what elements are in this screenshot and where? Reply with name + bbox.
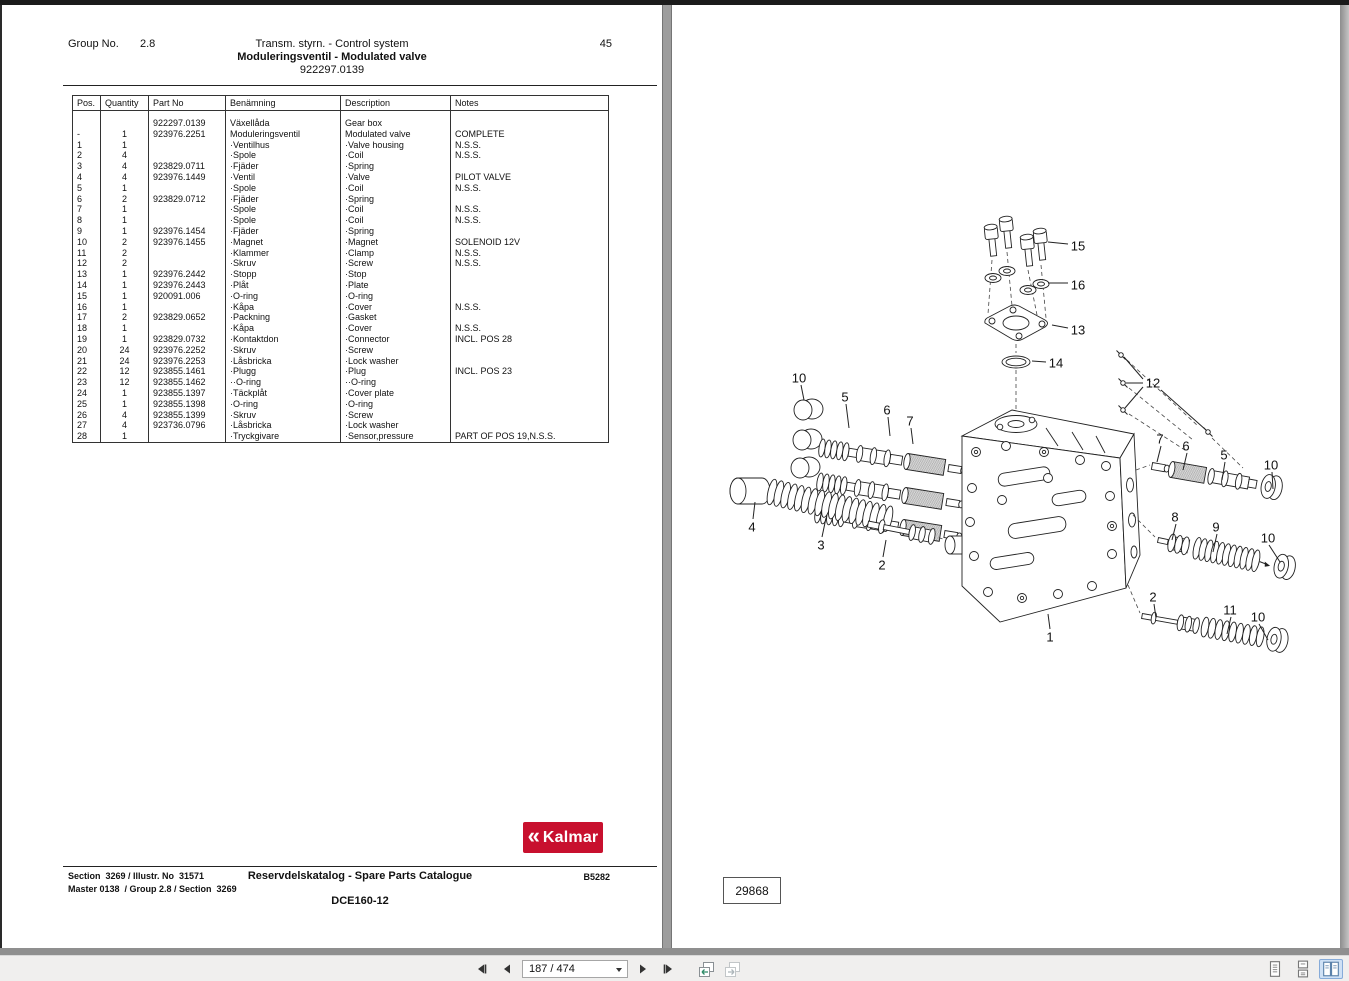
- page-title-line2: Moduleringsventil - Modulated valve: [2, 51, 662, 63]
- callout-label: 10: [1251, 610, 1265, 625]
- header-rule: [63, 85, 657, 86]
- table-row: 112·Klammer·ClampN.S.S.: [73, 248, 609, 259]
- callout-leader-line: [1157, 446, 1161, 462]
- table-row: 122·Skruv·ScrewN.S.S.: [73, 258, 609, 269]
- callout-leader-line: [1048, 614, 1050, 629]
- cover-plate-13: [985, 305, 1048, 341]
- callout-label: 7: [906, 414, 913, 429]
- previous-view-icon: [697, 961, 717, 978]
- figure-number: 29868: [735, 884, 768, 898]
- column-header: Description: [341, 96, 451, 111]
- parts-table-header-row: Pos.QuantityPart NoBenämningDescriptionN…: [73, 96, 609, 111]
- callout-label: 15: [1071, 239, 1085, 254]
- table-row: 91923976.1454·Fjäder·Spring: [73, 226, 609, 237]
- callout-leader-line: [1161, 390, 1206, 430]
- table-row: 241923855.1397·Täckplåt·Cover plate: [73, 388, 609, 399]
- callout-leader-line: [801, 385, 804, 400]
- callout-label: 6: [883, 403, 890, 418]
- table-row: 181·Kåpa·CoverN.S.S.: [73, 323, 609, 334]
- horizontal-scrollbar-track[interactable]: [0, 948, 1349, 955]
- callout-label: 5: [1220, 448, 1227, 463]
- pdf-toolbar: 187 / 474: [0, 955, 1349, 981]
- table-row: 102923976.1455·Magnet·MagnetSOLENOID 12V: [73, 237, 609, 248]
- callout-leader-line: [1032, 361, 1046, 362]
- single-page-view-button[interactable]: [1263, 959, 1287, 979]
- facing-pages-icon: [1322, 960, 1340, 978]
- pdf-viewer-window: Group No. 2.8 45 Transm. styrn. - Contro…: [0, 0, 1349, 981]
- table-row: 81·Spole·CoilN.S.S.: [73, 215, 609, 226]
- column-header: Notes: [451, 96, 609, 111]
- next-view-button[interactable]: [722, 958, 744, 980]
- callout-label: 13: [1071, 323, 1085, 338]
- previous-page-icon: [500, 962, 514, 976]
- plug-group-10-left: [791, 399, 823, 478]
- table-row: 191923829.0732·Kontaktdon·ConnectorINCL.…: [73, 334, 609, 345]
- callout-label: 9: [1212, 520, 1219, 535]
- o-ring-14: [1002, 356, 1030, 368]
- valve-spring-assembly-2-11: [1140, 604, 1290, 653]
- table-row: 24·Spole·CoilN.S.S.: [73, 150, 609, 161]
- next-page-icon: [636, 962, 650, 976]
- table-row: 2124923976.2253·Låsbricka·Lock washer: [73, 356, 609, 367]
- right-page: 105674321516131412765108910211101 29868: [672, 5, 1340, 948]
- single-page-icon: [1266, 960, 1284, 978]
- kalmar-logo: « Kalmar: [523, 822, 603, 853]
- page-number-value: 187 / 474: [529, 963, 575, 975]
- callout-leader-line: [1124, 357, 1143, 379]
- table-row: 62923829.0712·Fjäder·Spring: [73, 194, 609, 205]
- table-row: 34923829.0711·Fjäder·Spring: [73, 161, 609, 172]
- footer-master-line: Master 0138 / Group 2.8 / Section 3269: [68, 884, 237, 894]
- callout-label: 3: [817, 538, 824, 553]
- callout-label: 5: [841, 390, 848, 405]
- table-row: 2312923855.1462··O-ring··O-ring: [73, 377, 609, 388]
- first-page-button[interactable]: [470, 958, 492, 980]
- facing-pages-view-button[interactable]: [1319, 959, 1343, 979]
- table-row: 172923829.0652·Packning·Gasket: [73, 312, 609, 323]
- callout-label: 6: [1182, 439, 1189, 454]
- table-row: 141923976.2443·Plåt·Plate: [73, 280, 609, 291]
- assembly-part-number: 922297.0139: [2, 64, 662, 76]
- footer-doc-code: B5282: [583, 872, 610, 882]
- callout-label: 8: [1171, 510, 1178, 525]
- previous-view-button[interactable]: [696, 958, 718, 980]
- table-row: 281·Tryckgivare·Sensor,pressurePART OF P…: [73, 431, 609, 442]
- page-divider: [662, 5, 672, 948]
- table-row: 44923976.1449·Ventil·ValvePILOT VALVE: [73, 172, 609, 183]
- callout-leader-line: [1269, 545, 1280, 562]
- callout-leader-line: [1052, 325, 1068, 328]
- kalmar-logo-mark-icon: «: [528, 825, 540, 847]
- callout-label: 10: [1261, 531, 1275, 546]
- table-row: 131923976.2442·Stopp·Stop: [73, 269, 609, 280]
- callout-label: 4: [748, 520, 755, 535]
- valve-body-1: [945, 410, 1140, 622]
- column-header: Quantity: [101, 96, 149, 111]
- callout-leader-line: [888, 417, 890, 436]
- column-header: Benämning: [226, 96, 341, 111]
- plug-4: [730, 478, 770, 504]
- callout-label: 2: [1149, 590, 1156, 605]
- callout-leader-line: [883, 540, 886, 557]
- exploded-view-diagram: 105674321516131412765108910211101: [672, 5, 1340, 948]
- last-page-button[interactable]: [658, 958, 680, 980]
- table-row: 71·Spole·CoilN.S.S.: [73, 204, 609, 215]
- callout-label: 10: [1264, 458, 1278, 473]
- callout-label: 16: [1071, 278, 1085, 293]
- parts-table: Pos.QuantityPart NoBenämningDescriptionN…: [72, 95, 609, 443]
- column-header: Part No: [149, 96, 226, 111]
- callout-label: 10: [792, 371, 806, 386]
- footer-catalogue-title: Reservdelskatalog - Spare Parts Catalogu…: [63, 870, 657, 882]
- footer-rule: [63, 866, 657, 867]
- valve-spring-assembly-8-9: [1156, 528, 1298, 581]
- table-row: 264923855.1399·Skruv·Screw: [73, 410, 609, 421]
- previous-page-button[interactable]: [496, 958, 518, 980]
- footer-model: DCE160-12: [63, 895, 657, 907]
- table-row: 161·Kåpa·CoverN.S.S.: [73, 302, 609, 313]
- column-header: Pos.: [73, 96, 101, 111]
- kalmar-logo-word: Kalmar: [543, 829, 598, 847]
- callout-leader-line: [911, 428, 913, 444]
- table-row: 11·Ventilhus·Valve housingN.S.S.: [73, 140, 609, 151]
- callout-label: 11: [1223, 603, 1237, 618]
- vertical-scrollbar[interactable]: [1340, 5, 1349, 948]
- callout-label: 7: [1156, 432, 1163, 447]
- callout-label: 12: [1146, 376, 1160, 391]
- bolt-group-15: [984, 216, 1049, 267]
- table-row: 2212923855.1461·Plugg·PlugINCL. POS 23: [73, 366, 609, 377]
- last-page-icon: [662, 962, 676, 976]
- left-page: Group No. 2.8 45 Transm. styrn. - Contro…: [2, 5, 662, 948]
- callout-leader-line: [846, 404, 849, 428]
- figure-number-box: 29868: [723, 877, 781, 904]
- table-row: 2024923976.2252·Skruv·Screw: [73, 345, 609, 356]
- table-row: 151920091.006·O-ring·O-ring: [73, 291, 609, 302]
- table-row: 51·Spole·CoilN.S.S.: [73, 183, 609, 194]
- callout-leader-line: [1048, 242, 1068, 244]
- callout-label: 2: [878, 558, 885, 573]
- table-row: 274923736.0796·Låsbricka·Lock washer: [73, 420, 609, 431]
- table-row: 251923855.1398·O-ring·O-ring: [73, 399, 609, 410]
- page-number-field[interactable]: 187 / 474: [522, 960, 628, 978]
- continuous-view-icon: [1294, 960, 1312, 978]
- page-dropdown-caret-icon[interactable]: [616, 968, 622, 972]
- callout-label: 1: [1046, 630, 1053, 645]
- next-page-button[interactable]: [632, 958, 654, 980]
- callout-leader-line: [753, 502, 755, 519]
- first-page-icon: [474, 962, 488, 976]
- continuous-view-button[interactable]: [1291, 959, 1315, 979]
- callout-label: 14: [1049, 356, 1063, 371]
- parts-table-body: 922297.0139VäxellådaGear box-1923976.225…: [73, 111, 609, 443]
- table-row: 922297.0139VäxellådaGear box: [73, 118, 609, 129]
- page-navigation: 187 / 474: [470, 956, 744, 981]
- page-layout-modes: [1263, 958, 1343, 980]
- page-title-line1: Transm. styrn. - Control system: [2, 38, 662, 50]
- next-view-icon: [723, 961, 743, 978]
- washer-group-16: [985, 267, 1049, 295]
- table-spacer-row: [73, 111, 609, 119]
- table-row: -1923976.2251ModuleringsventilModulated …: [73, 129, 609, 140]
